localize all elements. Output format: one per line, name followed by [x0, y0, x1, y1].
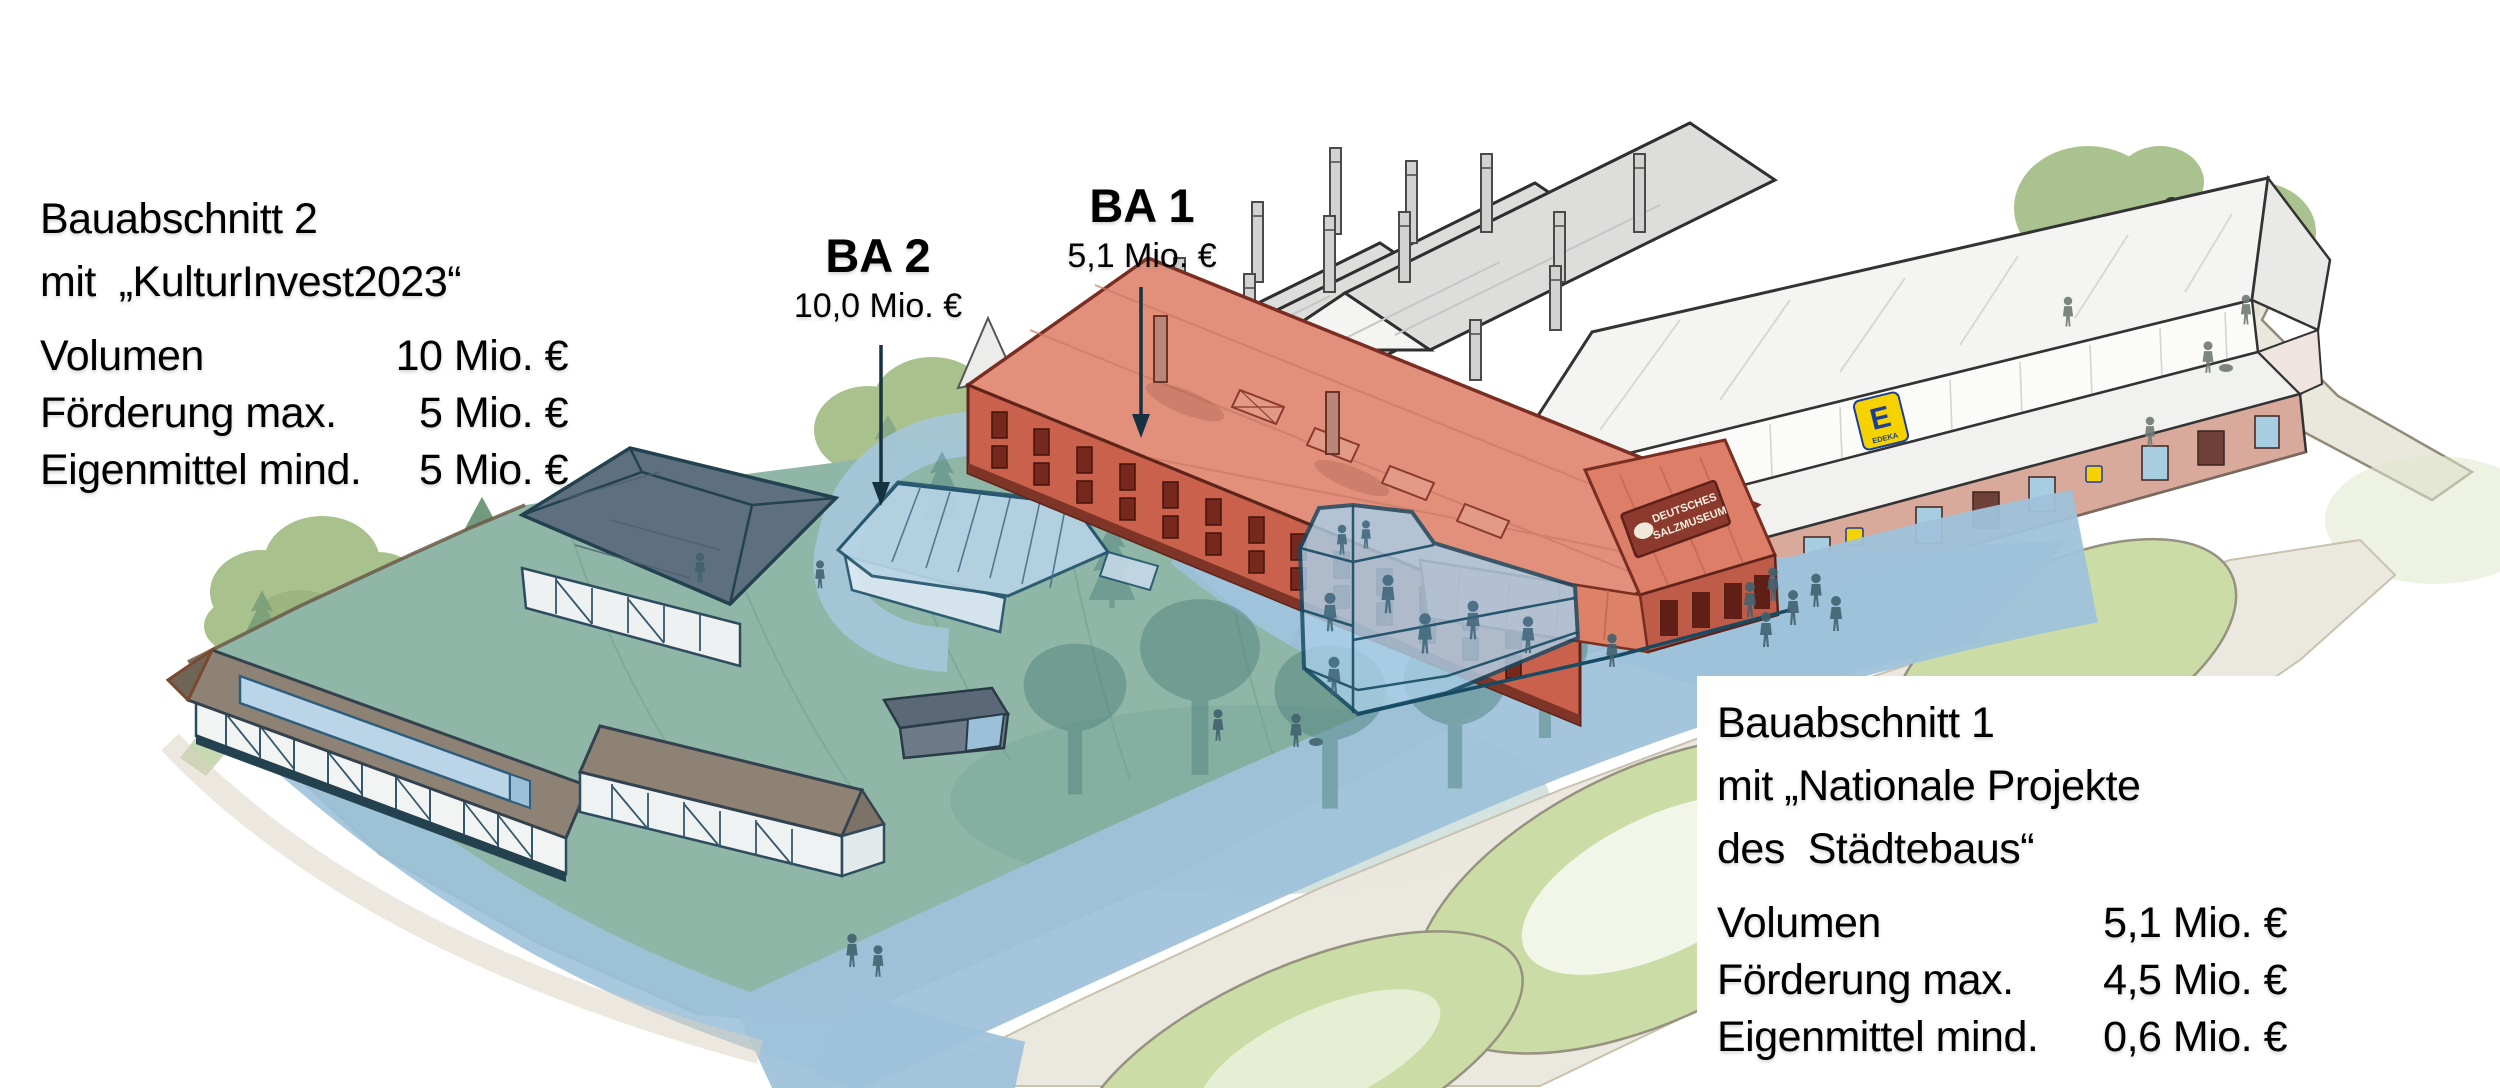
ba1-row-volumen: Volumen 5,1 Mio. € — [1717, 895, 2287, 952]
ba1-row-eigenmittel: Eigenmittel mind. 0,6 Mio. € — [1717, 1009, 2287, 1066]
ba2-title-line2: mit „KulturInvest2023“ — [40, 251, 568, 314]
ba1-title-line1: Bauabschnitt 1 — [1717, 692, 2287, 755]
ba1-marker-label: BA 1 — [1032, 180, 1252, 232]
ba2-row-volumen: Volumen 10 Mio. € — [40, 328, 568, 385]
ba2-row-eigenmittel: Eigenmittel mind. 5 Mio. € — [40, 442, 568, 499]
ba1-marker-amount: 5,1 Mio. € — [1032, 236, 1252, 276]
ba2-info-block: Bauabschnitt 2 mit „KulturInvest2023“ Vo… — [40, 188, 568, 499]
ba1-info-block: Bauabschnitt 1 mit „Nationale Projekte d… — [1717, 692, 2287, 1066]
ba1-row-foerderung: Förderung max. 4,5 Mio. € — [1717, 952, 2287, 1009]
ba2-title-line1: Bauabschnitt 2 — [40, 188, 568, 251]
ba1-title-line2: mit „Nationale Projekte — [1717, 755, 2287, 818]
ba1-marker: BA 1 5,1 Mio. € — [1032, 180, 1252, 276]
ba2-marker-label: BA 2 — [768, 230, 988, 282]
ba1-title-line3: des Städtebaus“ — [1717, 818, 2287, 881]
ba2-row-foerderung: Förderung max. 5 Mio. € — [40, 385, 568, 442]
slide-canvas: E EDEKA — [0, 0, 2500, 1088]
ba2-marker: BA 2 10,0 Mio. € — [768, 230, 988, 326]
ba2-marker-amount: 10,0 Mio. € — [768, 286, 988, 326]
shed — [884, 688, 1008, 758]
